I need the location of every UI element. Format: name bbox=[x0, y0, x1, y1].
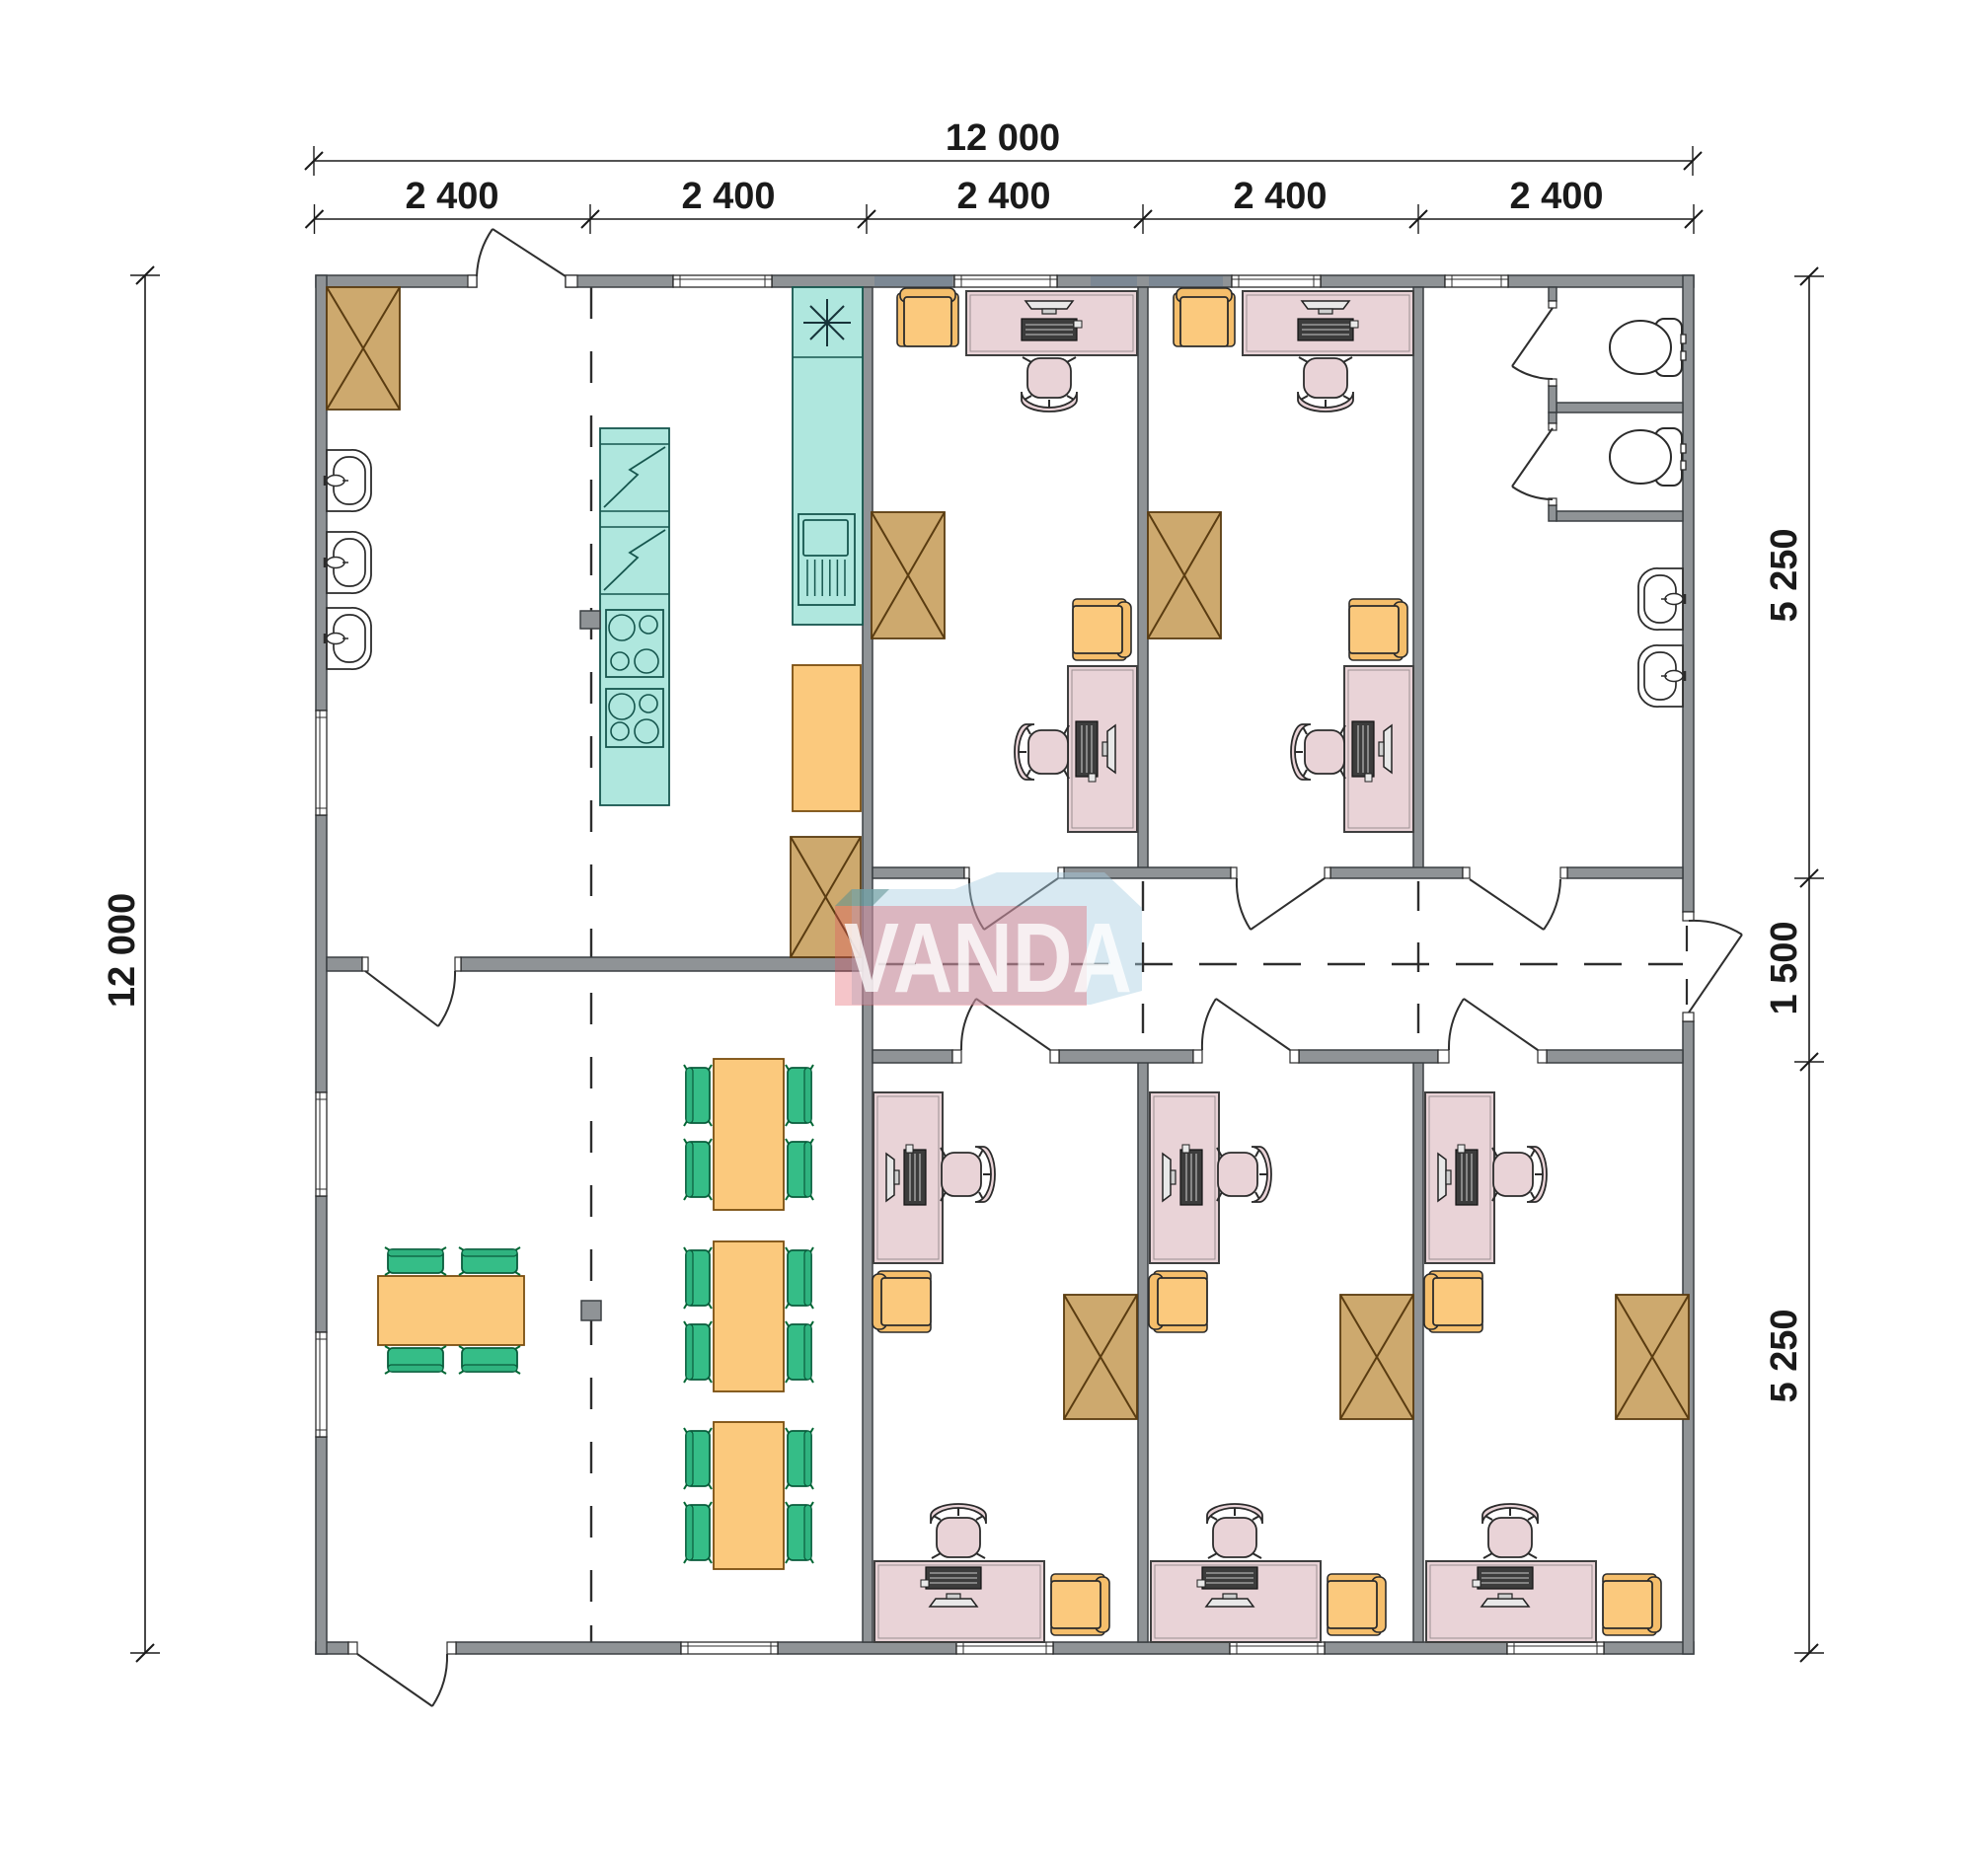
svg-text:2 400: 2 400 bbox=[956, 176, 1050, 217]
svg-text:VANDA: VANDA bbox=[844, 903, 1132, 1013]
svg-text:2 400: 2 400 bbox=[1233, 176, 1327, 217]
svg-text:1 500: 1 500 bbox=[1764, 921, 1805, 1014]
svg-text:5 250: 5 250 bbox=[1764, 1309, 1805, 1402]
svg-text:5 250: 5 250 bbox=[1764, 528, 1805, 622]
svg-text:2 400: 2 400 bbox=[1509, 176, 1603, 217]
svg-text:2 400: 2 400 bbox=[405, 176, 498, 217]
svg-text:2 400: 2 400 bbox=[681, 176, 775, 217]
svg-text:12 000: 12 000 bbox=[946, 117, 1060, 159]
svg-text:12 000: 12 000 bbox=[102, 893, 143, 1008]
